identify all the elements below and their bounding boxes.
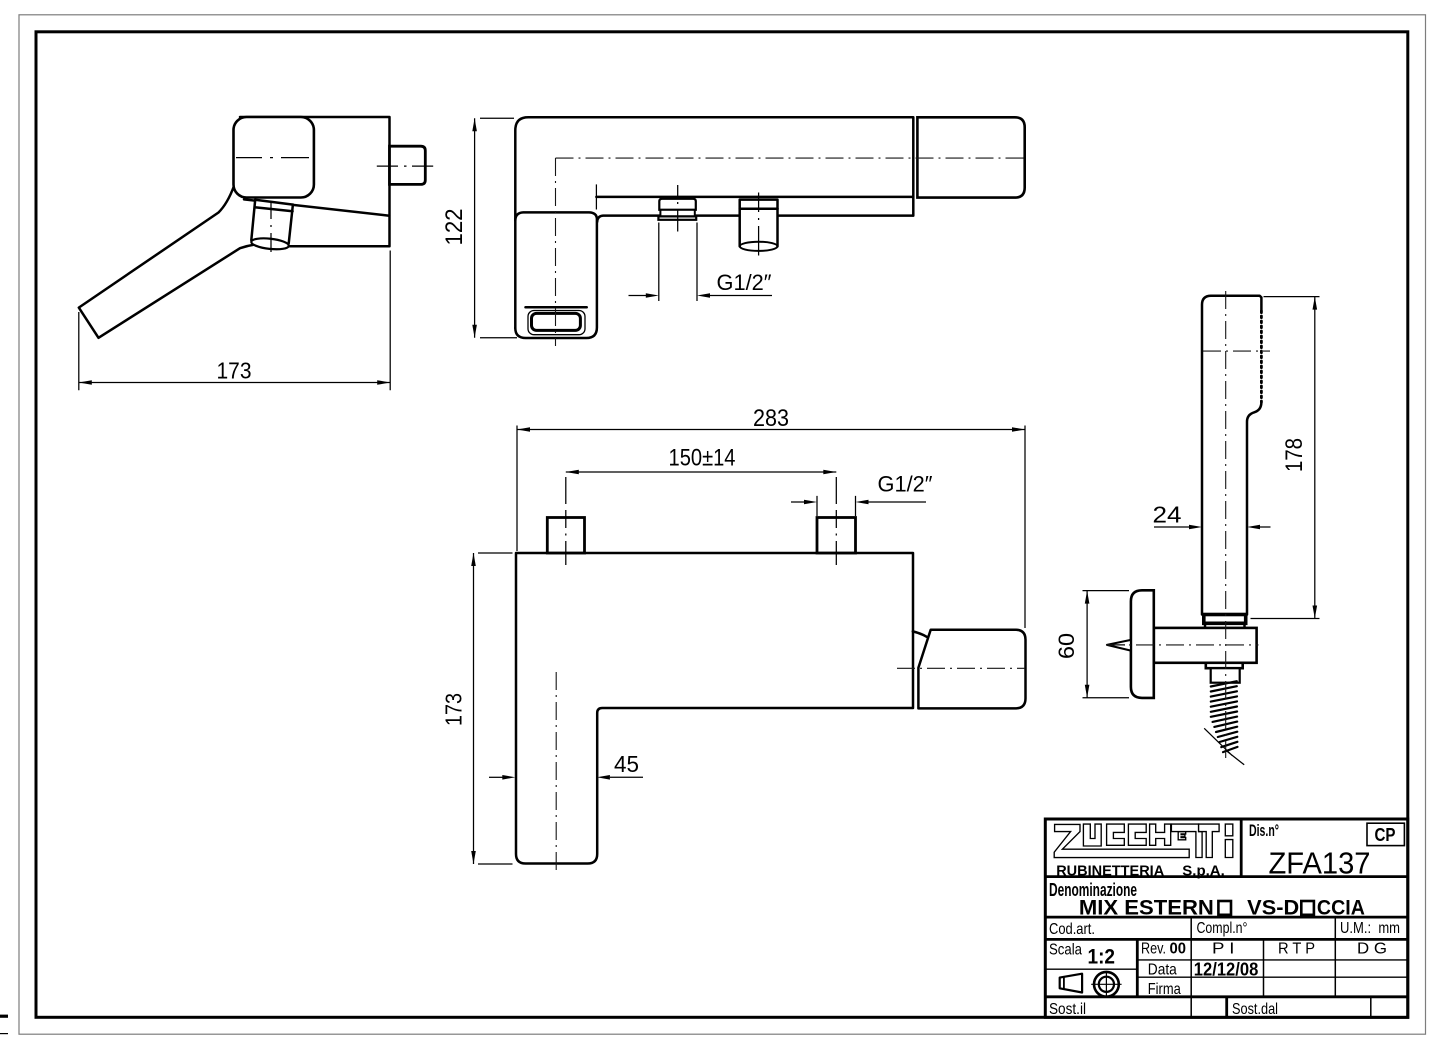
svg-text:CCIA: CCIA (1317, 897, 1365, 920)
svg-text:178: 178 (1281, 438, 1308, 472)
svg-text:G1/2″: G1/2″ (878, 472, 933, 497)
svg-text:R T P: R T P (1278, 941, 1315, 958)
svg-text:1:2: 1:2 (1088, 946, 1116, 969)
svg-text:P I: P I (1212, 941, 1235, 958)
svg-text:MIX ESTERN: MIX ESTERN (1079, 897, 1214, 920)
svg-text:ZFA137: ZFA137 (1269, 846, 1371, 881)
svg-text:Compl.n°: Compl.n° (1197, 920, 1248, 937)
svg-text:00: 00 (1170, 941, 1187, 958)
svg-text:S.p.A.: S.p.A. (1182, 863, 1225, 880)
svg-text:122: 122 (441, 209, 468, 246)
svg-text:24: 24 (1153, 502, 1182, 528)
svg-text:45: 45 (614, 751, 639, 777)
svg-text:D G: D G (1357, 941, 1387, 958)
svg-text:Rev.: Rev. (1141, 941, 1166, 958)
svg-text:Sost.dal: Sost.dal (1232, 1001, 1278, 1018)
svg-text:U.M.: mm: U.M.: mm (1340, 920, 1400, 937)
svg-text:CP: CP (1375, 825, 1396, 845)
svg-text:RUBINETTERIA: RUBINETTERIA (1056, 863, 1164, 880)
svg-text:G1/2″: G1/2″ (717, 270, 772, 295)
svg-text:173: 173 (441, 693, 467, 726)
svg-text:Dis.n°: Dis.n° (1249, 821, 1279, 840)
svg-text:173: 173 (217, 358, 252, 384)
svg-text:150±14: 150±14 (669, 445, 736, 472)
svg-text:Data: Data (1148, 962, 1177, 979)
svg-text:Sost.il: Sost.il (1049, 1001, 1086, 1018)
svg-text:60: 60 (1054, 633, 1079, 659)
svg-text:Scala: Scala (1049, 942, 1082, 959)
svg-text:Firma: Firma (1148, 981, 1181, 998)
svg-text:VS-D: VS-D (1247, 897, 1299, 920)
svg-text:12/12/08: 12/12/08 (1194, 960, 1259, 980)
svg-text:283: 283 (753, 405, 789, 432)
svg-text:Cod.art.: Cod.art. (1049, 921, 1095, 938)
